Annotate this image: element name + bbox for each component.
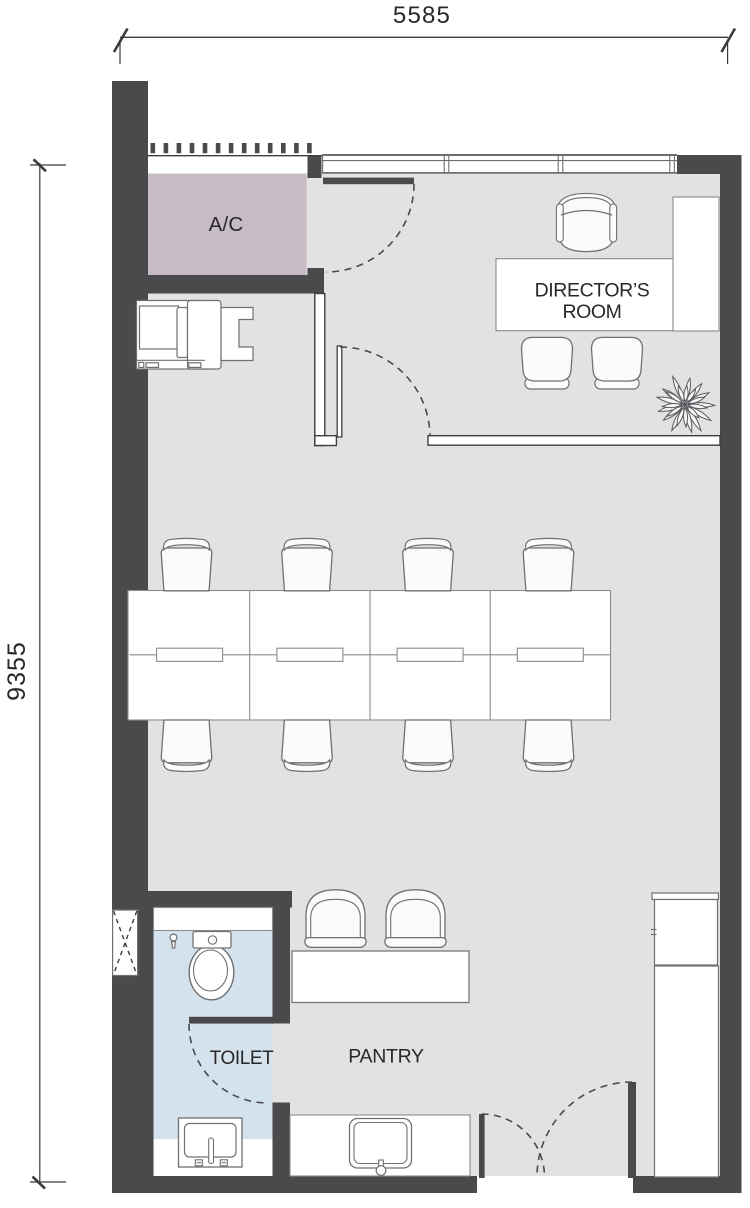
svg-text:ROOM: ROOM [562, 301, 621, 323]
svg-text:DIRECTOR’S: DIRECTOR’S [535, 279, 650, 301]
svg-text:PANTRY: PANTRY [348, 1046, 424, 1068]
svg-text:9355: 9355 [3, 641, 31, 701]
svg-text:A/C: A/C [209, 213, 244, 236]
svg-text:5585: 5585 [393, 2, 451, 29]
svg-text:TOILET: TOILET [210, 1048, 275, 1069]
